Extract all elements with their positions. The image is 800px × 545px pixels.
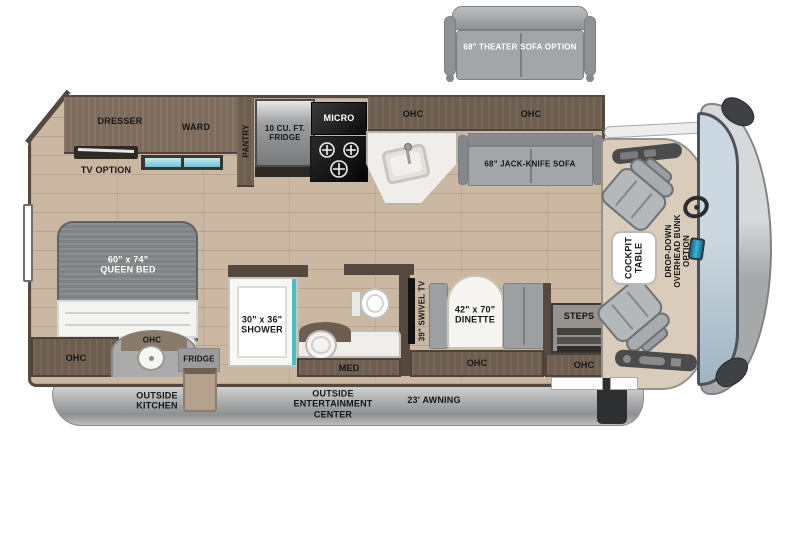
outside-fridge-label: FRIDGE [183,354,214,363]
shower-label: 30" x 36" SHOWER [227,315,297,336]
sheet-fold [65,324,190,326]
rear-window [23,204,33,282]
stove-cooktop [310,136,368,182]
bed-sheet [57,300,198,338]
pantry-label: PANTRY [241,124,250,157]
dash-knob [623,355,632,364]
ohc-dinette-label: OHC [467,358,488,368]
steps-label: STEPS [564,311,595,321]
micro-label: MICRO [324,113,355,123]
cab-header [604,121,704,138]
shower-top-wall [228,265,308,277]
dinette-bench-right [503,283,544,349]
stove-burners-icon [311,137,369,183]
queen-bed-label: 60" x 74" QUEEN BED [88,255,168,276]
dash-switch [671,358,682,367]
bath-sink [305,330,337,360]
outside-kitchen-sink [137,345,165,371]
bunk-option-label: DROP-DOWN OVERHEAD BUNK OPTION [664,208,692,294]
cockpit-table-label: COCKPIT TABLE [624,231,645,285]
steering-hub [693,204,699,210]
sheet-fold [65,312,190,314]
swivel-tv-label: 39" SWIVEL TV [417,271,426,351]
fridge-10-label: 10 CU. FT. FRIDGE [257,124,313,142]
swivel-tv-bar [408,278,415,344]
entry-compartment [551,377,603,390]
ohc-bedroom-label: OHC [66,353,87,363]
window-pane [145,158,181,167]
ohc-kitchen-label: OHC [403,109,424,119]
step [557,328,602,335]
cushion-seam [520,33,522,77]
outside-kitchen-label: OUTSIDE KITCHEN [112,391,202,412]
ohc-entry-label: OHC [574,360,595,370]
rv-floorplan-canvas: 68" THEATER SOFA OPTION DRESSER WARD PAN… [0,0,800,545]
theater-sofa-label: 68" THEATER SOFA OPTION [450,42,590,51]
fridge-counter [255,167,315,177]
tv-shelf [74,146,138,159]
toilet-seat [366,294,384,313]
dash-radio [639,356,665,366]
step [557,337,602,344]
outside-entertainment-label: OUTSIDE ENTERTAINMENT CENTER [273,388,393,419]
bedroom-windows-frame [141,155,223,170]
ohc-outside-kitchen-label: OHC [143,335,161,344]
dresser-label: DRESSER [98,116,143,126]
med-label: MED [339,363,360,373]
entry-compartment [610,377,638,390]
bath-sink-inner [311,336,331,354]
awning-label: 23' AWNING [389,395,479,405]
step [557,346,602,352]
toilet-bowl [360,288,390,319]
ohc-sofa-label: OHC [521,109,542,119]
sink-drain [149,356,154,361]
theater-sofa-cushions [456,30,584,80]
jackknife-sofa-label: 68" JACK-KNIFE SOFA [465,159,595,168]
tv-option-label: TV OPTION [81,165,131,175]
tv-screen [78,148,134,153]
ward-label: WARD [182,122,210,132]
theater-sofa-back [452,6,588,30]
sofa-back [468,133,593,146]
dinette-label: 42" x 70" DINETTE [444,305,506,326]
window-pane [184,158,220,167]
bench-seam [523,287,525,345]
